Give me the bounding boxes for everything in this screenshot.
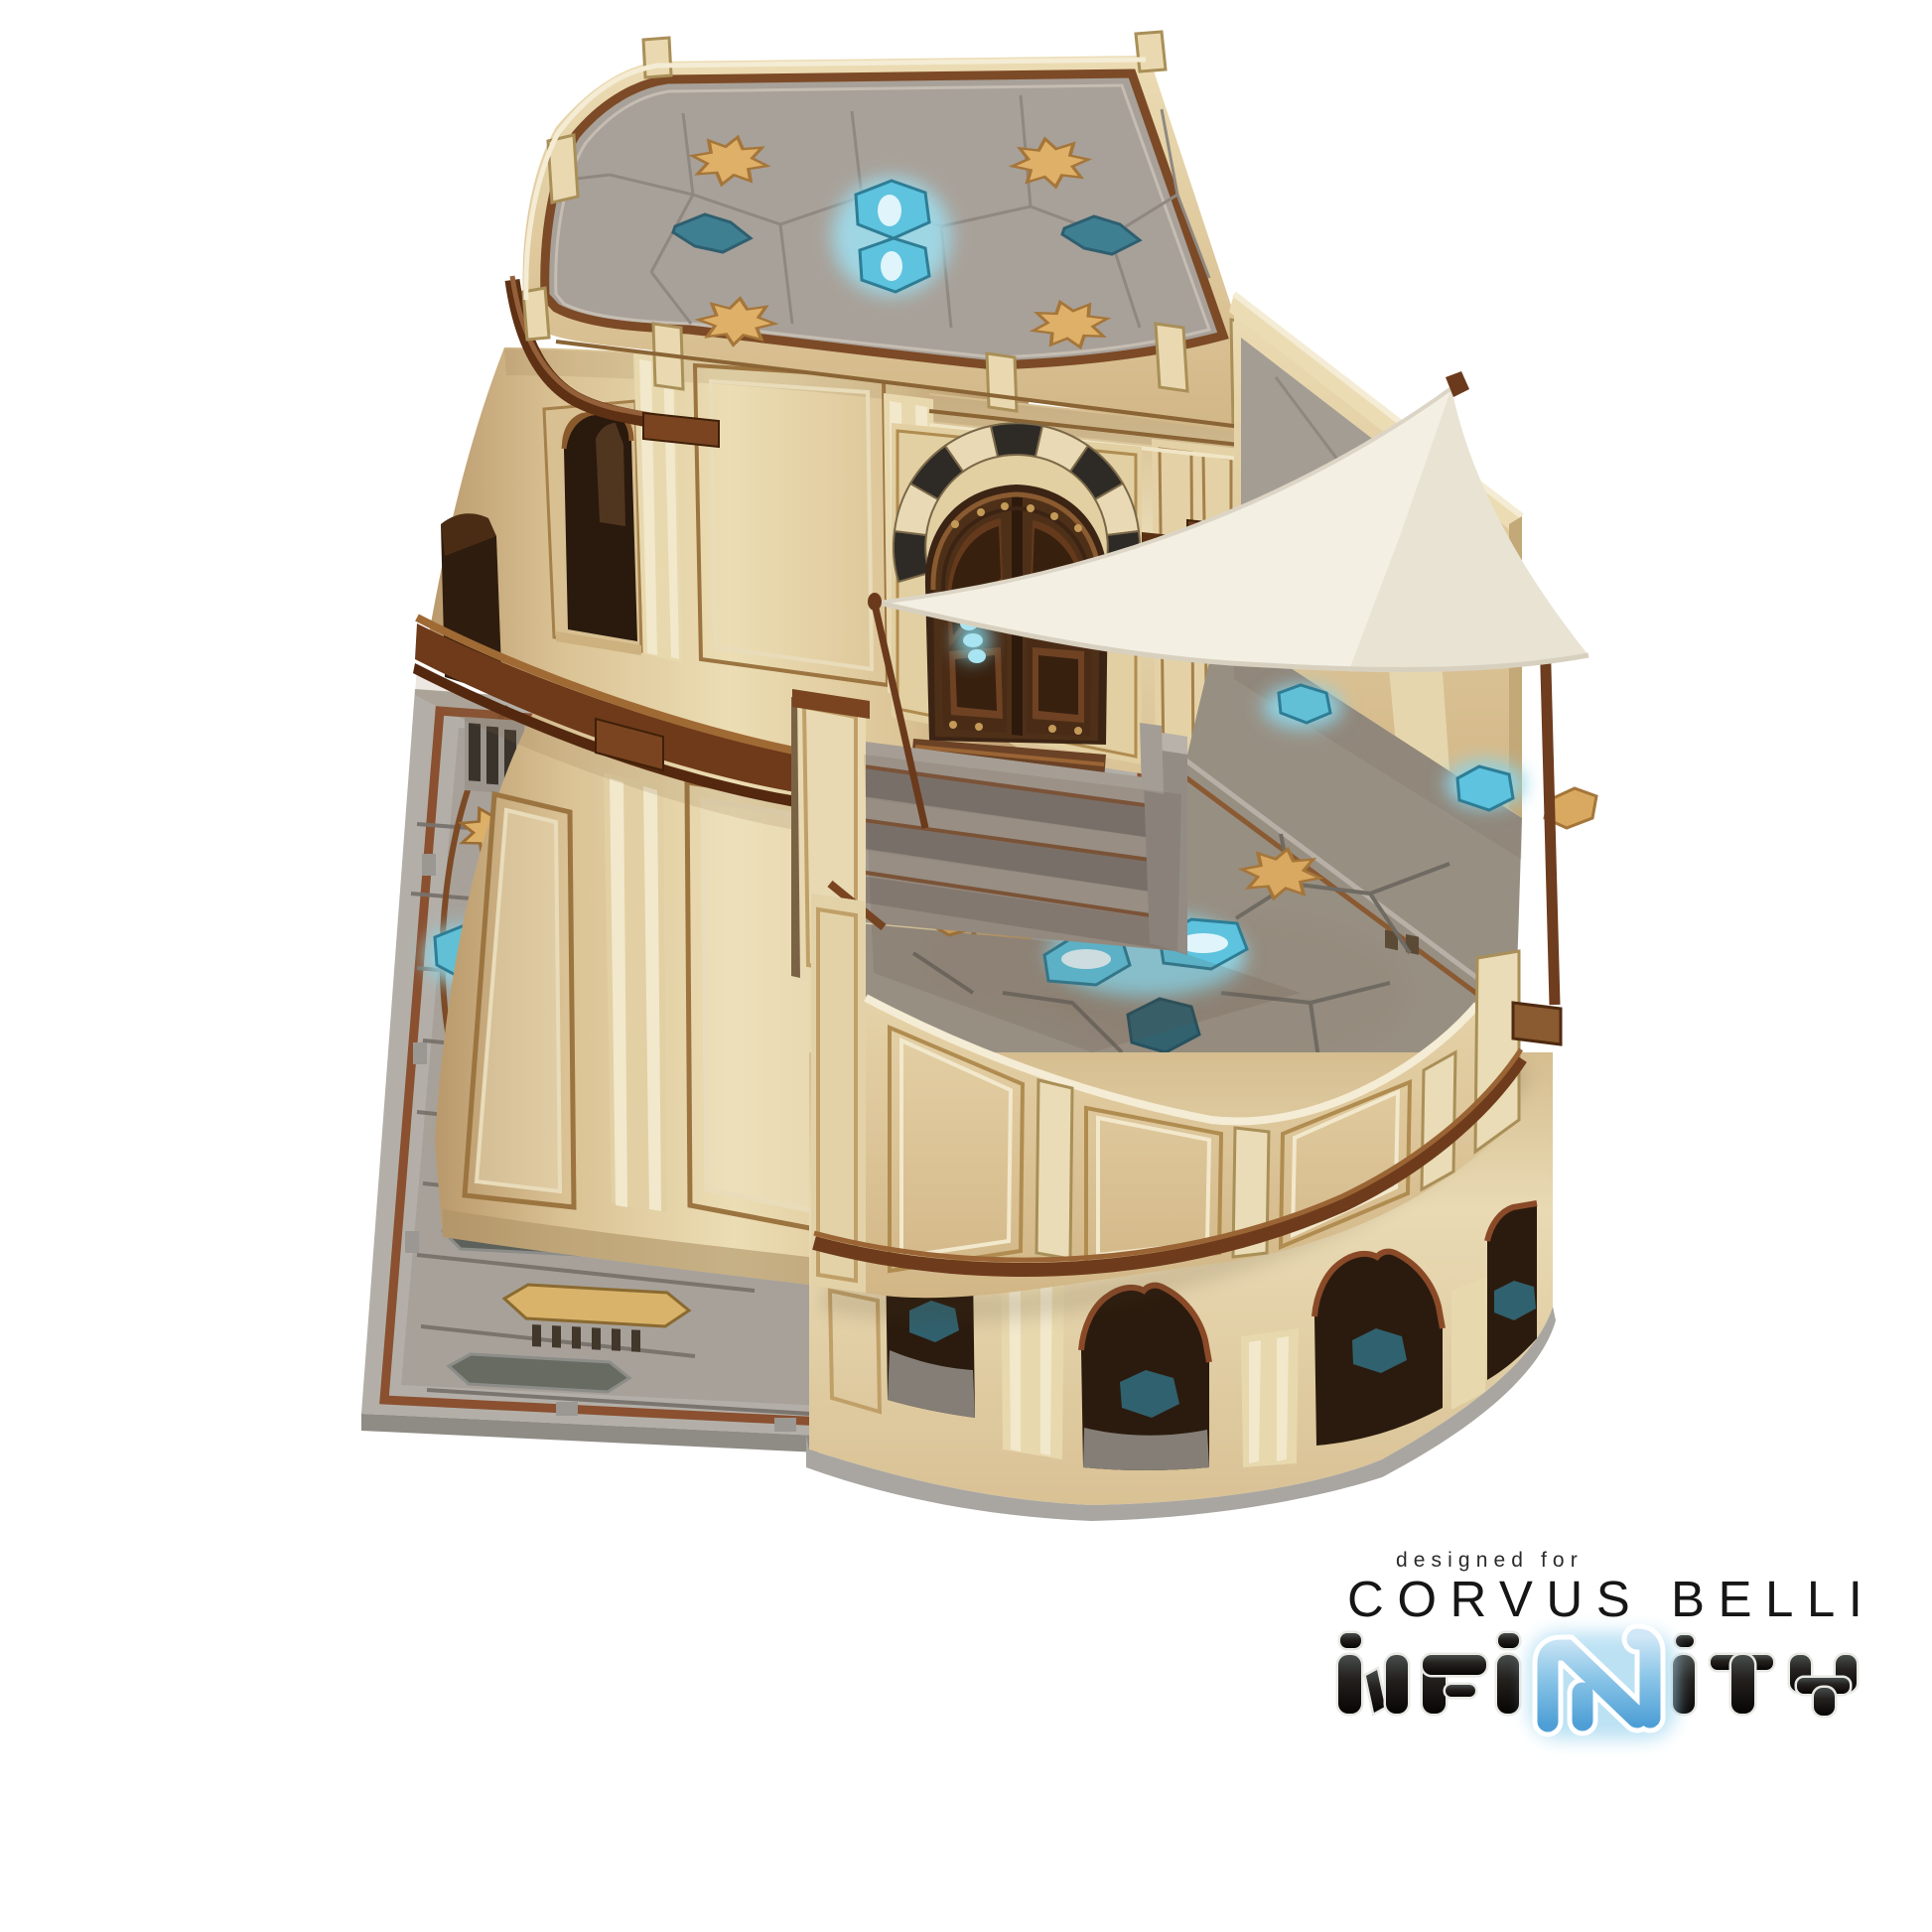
- svg-text:CORVUS BELLI: CORVUS BELLI: [1347, 1571, 1875, 1627]
- svg-text:designed for: designed for: [1396, 1549, 1584, 1572]
